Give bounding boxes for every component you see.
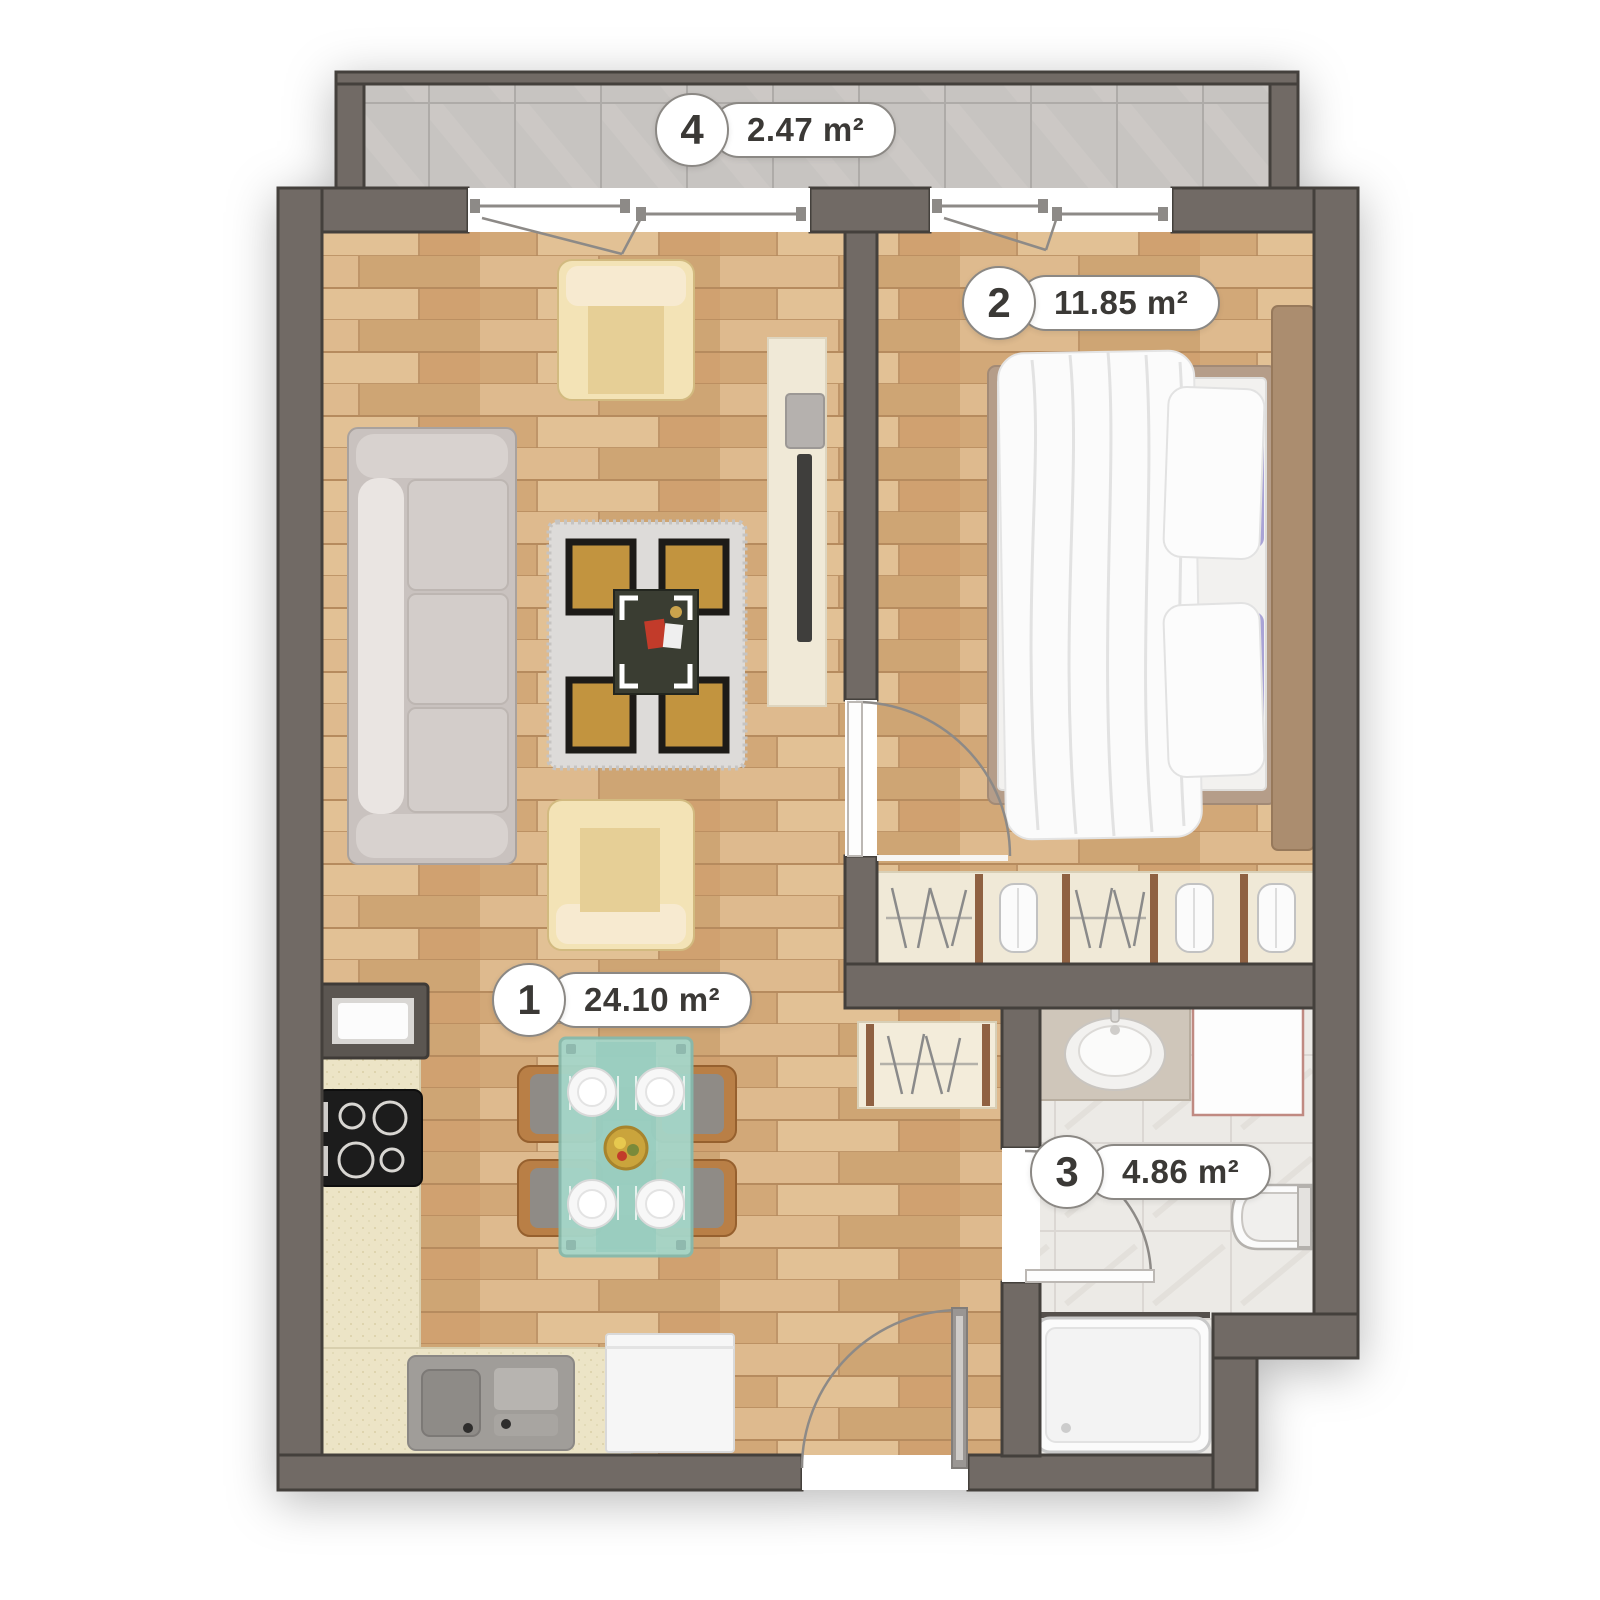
room-number: 4 (680, 106, 703, 154)
room-label-living: 24.10 m² 1 (492, 965, 752, 1035)
armchair-top (558, 260, 694, 400)
wardrobe (877, 872, 1314, 965)
armchair-bottom (548, 800, 694, 950)
room-area-badge: 2.47 m² (711, 102, 896, 158)
room-number: 1 (517, 976, 540, 1024)
floor-plan-drawing (0, 0, 1600, 1600)
washing-machine (1193, 1008, 1303, 1115)
headboard (1272, 306, 1314, 850)
room-label-bathroom: 4.86 m² 3 (1030, 1137, 1271, 1207)
shower (1036, 1312, 1210, 1452)
hall-closet (858, 1022, 996, 1108)
room-number: 2 (987, 279, 1010, 327)
room-area: 24.10 m² (584, 981, 720, 1019)
room-area-badge: 4.86 m² (1086, 1144, 1271, 1200)
balcony-parapet (336, 72, 1298, 84)
fruit-bowl (605, 1127, 647, 1169)
room-area: 4.86 m² (1122, 1153, 1239, 1191)
bed (988, 306, 1314, 850)
room-number-badge: 2 (962, 266, 1036, 340)
room-number-badge: 4 (655, 93, 729, 167)
room-label-bedroom: 11.85 m² 2 (962, 268, 1220, 338)
room-number: 3 (1055, 1148, 1078, 1196)
room-number-badge: 3 (1030, 1135, 1104, 1209)
sofa (348, 428, 516, 864)
room-area-badge: 11.85 m² (1018, 275, 1220, 331)
kitchen-wall-cabinet (318, 984, 428, 1058)
pillow (1163, 386, 1265, 559)
bathroom-sink (1040, 1002, 1190, 1100)
pillow (1163, 602, 1265, 777)
room-number-badge: 1 (492, 963, 566, 1037)
coffee-table (614, 590, 698, 694)
room-area: 2.47 m² (747, 111, 864, 149)
room-area-badge: 24.10 m² (548, 972, 752, 1028)
tv-unit (768, 338, 826, 706)
fridge (606, 1334, 734, 1452)
room-label-balcony: 2.47 m² 4 (655, 95, 896, 165)
kitchen-sink (408, 1356, 574, 1450)
cooktop (318, 1090, 422, 1186)
room-area: 11.85 m² (1054, 284, 1188, 322)
floor-plan: 24.10 m² 1 11.85 m² 2 4.86 m² 3 2.47 m² … (0, 0, 1600, 1600)
dining-table (560, 1038, 692, 1256)
